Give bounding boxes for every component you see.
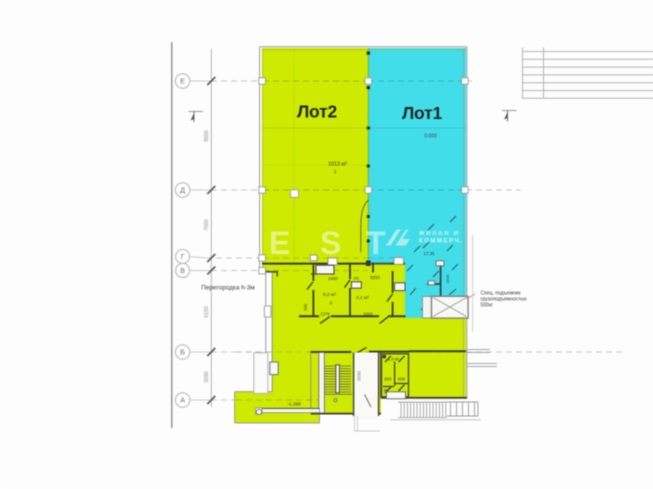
svg-text:А: А <box>180 396 185 405</box>
svg-text:1375: 1375 <box>320 311 330 316</box>
svg-text:7000: 7000 <box>204 219 210 231</box>
svg-text:Б: Б <box>180 348 185 357</box>
svg-text:17,35: 17,35 <box>424 251 436 256</box>
svg-text:E: E <box>269 225 290 261</box>
svg-text:-1.280: -1.280 <box>287 401 301 407</box>
svg-text:4,1 м²: 4,1 м² <box>356 295 369 301</box>
svg-text:600: 600 <box>398 376 406 381</box>
svg-text:9000: 9000 <box>204 130 210 142</box>
svg-text:Г: Г <box>181 254 185 261</box>
svg-text:РС: РС <box>354 276 360 281</box>
svg-text:500кг: 500кг <box>481 303 494 309</box>
svg-text:3460: 3460 <box>363 311 373 316</box>
svg-text:1,4 м²: 1,4 м² <box>388 357 400 362</box>
svg-text:1500: 1500 <box>445 274 450 284</box>
svg-text:Перегородка h-3м: Перегородка h-3м <box>201 285 255 292</box>
svg-text:Лот1: Лот1 <box>402 103 443 123</box>
svg-text:1013 м²: 1013 м² <box>328 162 347 168</box>
svg-text:3090: 3090 <box>357 370 362 381</box>
svg-text:600: 600 <box>385 376 393 381</box>
svg-text:Е: Е <box>180 77 185 86</box>
svg-text:S: S <box>320 225 341 261</box>
svg-text:Лот2: Лот2 <box>297 102 338 122</box>
svg-text:2: 2 <box>334 169 337 174</box>
svg-text:2460: 2460 <box>328 276 338 281</box>
svg-text:0.000: 0.000 <box>424 134 437 140</box>
svg-text:6150: 6150 <box>204 306 210 318</box>
svg-text:В: В <box>180 268 185 275</box>
svg-text:8250: 8250 <box>370 275 380 280</box>
svg-text:600: 600 <box>303 303 308 311</box>
svg-text:T: T <box>366 225 386 261</box>
svg-text:9,2 м²: 9,2 м² <box>323 292 336 298</box>
svg-text:3090: 3090 <box>204 371 210 383</box>
svg-text:Д: Д <box>180 186 185 195</box>
svg-text:КОММЕРЧ.: КОММЕРЧ. <box>419 239 462 245</box>
